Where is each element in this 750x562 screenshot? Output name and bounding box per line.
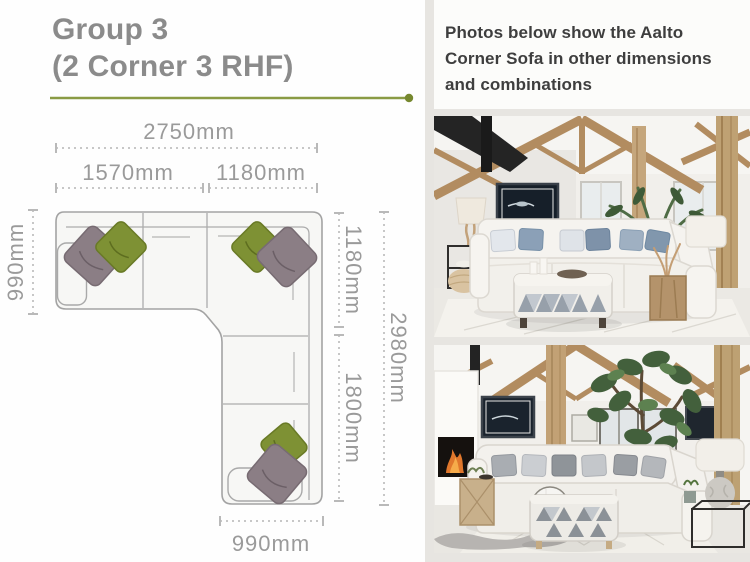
- caption-card: Photos below show the Aalto Corner Sofa …: [434, 0, 750, 109]
- wall-art: [497, 184, 558, 224]
- product-dimensions-section: Group 3 (2 Corner 3 RHF): [0, 0, 750, 562]
- dim-right-upper-depth-label: 1180mm: [341, 225, 366, 315]
- dim-overall-depth-label: 2980mm: [386, 312, 411, 404]
- dim-bottom-width-label: 990mm: [232, 531, 310, 556]
- group-title-line2: (2 Corner 3 RHF): [52, 48, 294, 85]
- photos-panel: Photos below show the Aalto Corner Sofa …: [425, 0, 750, 562]
- dim-right-lower-depth-label: 1800mm: [341, 372, 366, 464]
- photos-caption: Photos below show the Aalto Corner Sofa …: [434, 0, 741, 98]
- dimension-panel: Group 3 (2 Corner 3 RHF): [0, 0, 425, 562]
- dim-left-depth-label: 990mm: [3, 223, 28, 301]
- photo-living-room-1: [434, 116, 750, 337]
- dim-overall-width-label: 2750mm: [143, 119, 235, 144]
- dim-left-section-width-label: 1570mm: [82, 160, 174, 185]
- photo-living-room-2: [434, 345, 750, 553]
- group-title: Group 3 (2 Corner 3 RHF): [52, 11, 294, 85]
- dim-corner-section-width-label: 1180mm: [216, 160, 306, 185]
- divider-rule: [50, 94, 413, 102]
- group-title-line1: Group 3: [52, 11, 294, 48]
- patterned-ottoman: [522, 495, 626, 552]
- divider-dot-icon: [405, 94, 413, 102]
- dimension-dotted-lines: [33, 148, 384, 521]
- wall-art: [482, 397, 534, 437]
- dimension-end-ticks: [28, 143, 389, 526]
